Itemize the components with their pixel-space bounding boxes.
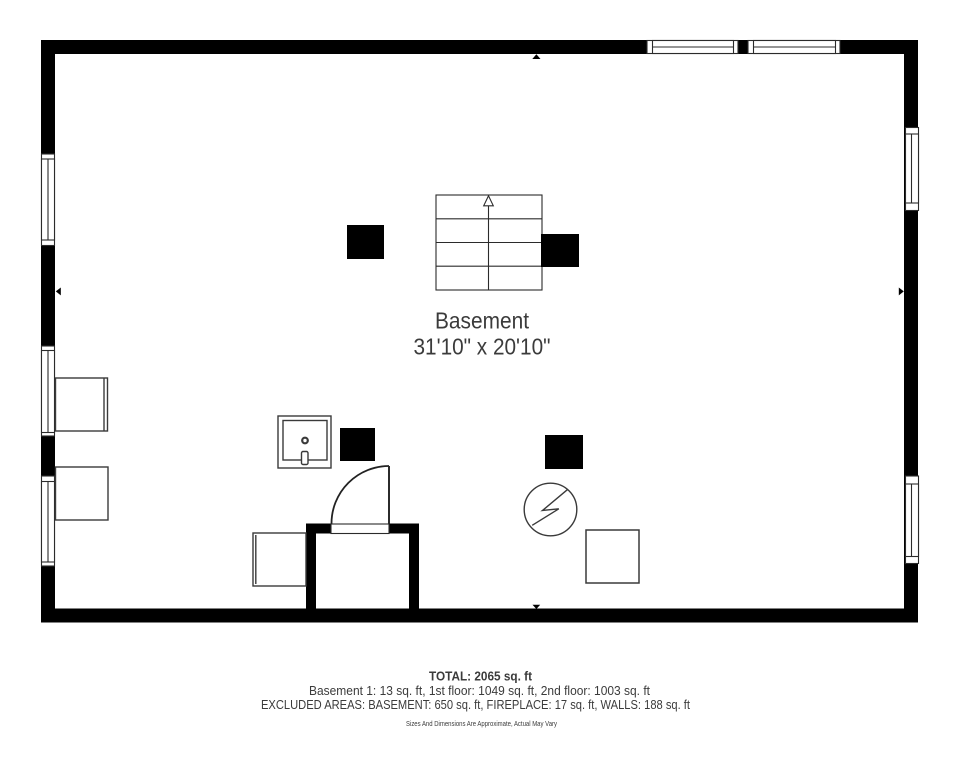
svg-text:Sizes And Dimensions Are Appro: Sizes And Dimensions Are Approximate, Ac…	[406, 719, 557, 728]
svg-text:Basement 1: 13 sq. ft, 1st flo: Basement 1: 13 sq. ft, 1st floor: 1049 s…	[309, 683, 650, 698]
svg-text:TOTAL: 2065 sq. ft: TOTAL: 2065 sq. ft	[429, 669, 533, 684]
svg-text:Basement: Basement	[435, 308, 530, 334]
svg-text:31'10" x 20'10": 31'10" x 20'10"	[414, 334, 551, 360]
svg-text:EXCLUDED AREAS: BASEMENT: 650: EXCLUDED AREAS: BASEMENT: 650 sq. ft, FI…	[261, 697, 690, 712]
